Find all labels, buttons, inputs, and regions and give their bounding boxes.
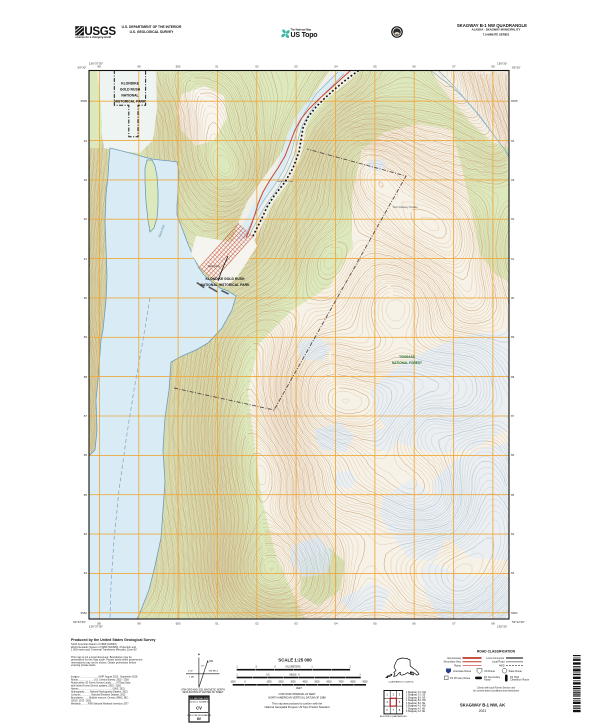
svg-text:ALASKA - SKAGWAY MUNICIPALITY: ALASKA - SKAGWAY MUNICIPALITY <box>472 28 521 32</box>
svg-text:Local Road: Local Road <box>492 661 505 664</box>
svg-text:08: 08 <box>491 622 495 626</box>
svg-text:US Route: US Route <box>484 669 496 673</box>
svg-text:TONGASS: TONGASS <box>399 355 415 359</box>
svg-text:NATIONAL: NATIONAL <box>121 94 138 98</box>
svg-text:US Topo: US Topo <box>291 32 318 39</box>
svg-text:05: 05 <box>373 65 377 69</box>
svg-text:Hydrography.........National H: Hydrography.........National Hydrography… <box>71 691 128 694</box>
svg-text:02: 02 <box>255 65 259 69</box>
svg-text:NORTH AMERICAN VERTICAL DATUM: NORTH AMERICAN VERTICAL DATUM OF 1988 <box>268 695 326 699</box>
svg-text:SKAGWAY B-1 NW, AK: SKAGWAY B-1 NW, AK <box>460 703 505 708</box>
svg-text:87: 87 <box>511 414 515 418</box>
svg-text:99: 99 <box>137 622 141 626</box>
svg-text:99: 99 <box>137 65 141 69</box>
svg-text:2021: 2021 <box>479 709 487 713</box>
svg-text:90: 90 <box>84 296 88 300</box>
svg-text:Wetlands...........FWS Nationa: Wetlands...........FWS National Wetlands… <box>71 703 129 706</box>
svg-text:136°30': 136°30' <box>497 625 508 629</box>
svg-text:1 000-meter grid: Universal Tr: 1 000-meter grid: Universal Transverse M… <box>71 648 137 652</box>
svg-text:Interstate Route: Interstate Route <box>453 669 472 673</box>
svg-text:Roads.........................: Roads.........................U.S. Censu… <box>71 679 130 682</box>
svg-text:GOLD RUSH: GOLD RUSH <box>120 88 141 92</box>
svg-text:Local Connector: Local Connector <box>486 657 504 660</box>
svg-text:86: 86 <box>84 453 88 457</box>
svg-text:85: 85 <box>84 493 88 497</box>
svg-text:Names.........................: Names...................................… <box>71 689 126 691</box>
svg-text:136°37'30": 136°37'30" <box>89 62 104 66</box>
svg-text:Clearance Route: Clearance Route <box>510 678 530 682</box>
svg-text:USGS, 1972 - 2021: USGS, 1972 - 2021 <box>71 701 92 703</box>
svg-text:1000: 1000 <box>230 682 236 684</box>
svg-text:QUADRANGLE LOCATION: QUADRANGLE LOCATION <box>389 680 414 683</box>
svg-text:KLONDIKE GOLD RUSH: KLONDIKE GOLD RUSH <box>206 277 246 281</box>
svg-text:6000: 6000 <box>326 682 332 684</box>
svg-text:01: 01 <box>215 65 219 69</box>
svg-text:U.S. GEOLOGICAL SURVEY: U.S. GEOLOGICAL SURVEY <box>130 30 175 34</box>
svg-text:Gold Rush Cem: Gold Rush Cem <box>277 181 293 183</box>
svg-text:0°02': 0°02' <box>188 671 194 673</box>
svg-text:93: 93 <box>511 178 515 182</box>
svg-text:92: 92 <box>84 217 88 221</box>
svg-text:136°30': 136°30' <box>497 62 508 66</box>
svg-text:04: 04 <box>334 622 338 626</box>
svg-text:136°37'30": 136°37'30" <box>89 625 104 629</box>
svg-text:89: 89 <box>84 335 88 339</box>
svg-text:science for a changing world: science for a changing world <box>75 35 111 39</box>
svg-text:59°30': 59°30' <box>78 66 87 70</box>
svg-text:7 Skagway A-1 NE: 7 Skagway A-1 NE <box>406 707 426 710</box>
svg-text:02: 02 <box>255 622 259 626</box>
svg-text:8V: 8V <box>197 717 202 721</box>
svg-text:2000: 2000 <box>278 682 284 684</box>
svg-text:04: 04 <box>334 65 338 69</box>
svg-text:05: 05 <box>373 622 377 626</box>
svg-text:8 Skagway A-1 SE: 8 Skagway A-1 SE <box>406 710 425 713</box>
svg-text:Ramp: Ramp <box>454 664 461 667</box>
svg-text:6582: 6582 <box>81 611 88 615</box>
svg-text:5 Skagway B-1 SE: 5 Skagway B-1 SE <box>406 703 426 705</box>
svg-text:6595: 6595 <box>81 99 88 103</box>
svg-text:01: 01 <box>215 622 219 626</box>
svg-text:4 Skagway B-1 SW: 4 Skagway B-1 SW <box>406 700 427 702</box>
svg-text:87: 87 <box>84 414 88 418</box>
svg-text:Produced by the United States: Produced by the United States Geological… <box>71 638 155 642</box>
svg-text:83: 83 <box>511 571 515 575</box>
svg-text:06: 06 <box>412 622 416 626</box>
svg-text:National Geospatial Program US: National Geospatial Program US Topo Prod… <box>265 705 330 709</box>
svg-text:6 Skagway A-1 NW: 6 Skagway A-1 NW <box>406 705 427 708</box>
svg-text:UTM GRID AND 2021 MAGNETIC NOR: UTM GRID AND 2021 MAGNETIC NORTH <box>181 688 225 691</box>
svg-text:94: 94 <box>84 139 88 143</box>
svg-text:3000: 3000 <box>290 682 296 684</box>
svg-text:with limited Forest Service up: with limited Forest Service updates, 201… <box>71 685 122 688</box>
svg-text:91: 91 <box>84 257 88 261</box>
svg-text:ADJOINING QUADRANGLES: ADJOINING QUADRANGLES <box>380 715 407 718</box>
svg-text:2 Skagway C-1 SE: 2 Skagway C-1 SE <box>406 695 426 697</box>
svg-text:Route: Route <box>484 678 491 682</box>
svg-text:HISTORICAL PARK: HISTORICAL PARK <box>115 100 146 104</box>
svg-text:5000: 5000 <box>314 682 320 684</box>
svg-text:84: 84 <box>84 532 88 536</box>
svg-text:500: 500 <box>176 622 181 626</box>
svg-text:84: 84 <box>511 532 515 536</box>
svg-text:83: 83 <box>84 571 88 575</box>
svg-text:92: 92 <box>511 217 515 221</box>
svg-text:MILES: MILES <box>290 674 297 676</box>
svg-text:FEET: FEET <box>296 688 302 690</box>
svg-text:86: 86 <box>511 453 515 457</box>
svg-text:DECLINATION AT CENTER OF SHEET: DECLINATION AT CENTER OF SHEET <box>183 691 224 694</box>
svg-text:ROAD CLASSIFICATION: ROAD CLASSIFICATION <box>477 650 516 654</box>
svg-text:Contours.................Natio: Contours.................National Elevat… <box>71 694 126 697</box>
svg-text:94: 94 <box>511 139 515 143</box>
svg-text:U.S. DEPARTMENT OF THE INTERIO: U.S. DEPARTMENT OF THE INTERIOR <box>122 25 182 29</box>
svg-text:FS Primary Route: FS Primary Route <box>450 676 471 680</box>
svg-text:88: 88 <box>511 375 515 379</box>
svg-text:91: 91 <box>511 257 515 261</box>
svg-text:KILOMETERS: KILOMETERS <box>286 667 301 669</box>
svg-text:89: 89 <box>511 335 515 339</box>
svg-text:88: 88 <box>84 375 88 379</box>
svg-text:KLONDIKE: KLONDIKE <box>121 82 139 86</box>
svg-text:4000: 4000 <box>302 682 308 684</box>
svg-text:Boundaries..........Multiple s: Boundaries..........Multiple sources; Ce… <box>71 697 129 700</box>
svg-text:59°22'30": 59°22'30" <box>512 620 525 624</box>
svg-text:07: 07 <box>452 65 456 69</box>
svg-text:03: 03 <box>294 622 298 626</box>
svg-text:59°30': 59°30' <box>512 66 521 70</box>
svg-text:6582: 6582 <box>511 611 518 615</box>
svg-text:Secondary Hwy: Secondary Hwy <box>443 661 461 664</box>
svg-text:U.S. NATIONAL GRID: U.S. NATIONAL GRID <box>190 697 209 700</box>
svg-text:85: 85 <box>511 493 515 497</box>
svg-text:8000: 8000 <box>350 682 356 684</box>
svg-text:338 MILS: 338 MILS <box>209 671 219 673</box>
svg-text:93: 93 <box>84 178 88 182</box>
svg-text:Skagway: Skagway <box>208 264 221 268</box>
svg-text:08: 08 <box>491 65 495 69</box>
svg-text:7000: 7000 <box>338 682 344 684</box>
svg-text:1 MIL: 1 MIL <box>189 677 195 679</box>
svg-text:for current travel conditions: for current travel conditions and restri… <box>473 689 520 692</box>
svg-text:1000: 1000 <box>266 682 272 684</box>
svg-text:NATIONAL HISTORICAL PARK: NATIONAL HISTORICAL PARK <box>200 283 250 287</box>
svg-text:SCALE 1:25 000: SCALE 1:25 000 <box>278 658 312 663</box>
svg-text:Twin Dewey Peaks: Twin Dewey Peaks <box>392 205 418 209</box>
svg-text:90: 90 <box>511 296 515 300</box>
svg-text:Roads within US Forest Service: Roads within US Forest Service Lands....… <box>71 682 131 685</box>
svg-text:07: 07 <box>452 622 456 626</box>
svg-text:06: 06 <box>412 65 416 69</box>
svg-text:6595: 6595 <box>511 99 518 103</box>
svg-text:The National Map: The National Map <box>291 28 312 31</box>
svg-text:100,000-m SQUARE ID: 100,000-m SQUARE ID <box>189 701 210 704</box>
svg-text:Imagery.......................: Imagery..............................NAI… <box>71 676 138 679</box>
svg-text:State Route: State Route <box>509 669 523 673</box>
svg-text:entering private lands.: entering private lands. <box>71 663 96 667</box>
svg-text:Expressway: Expressway <box>448 657 462 660</box>
svg-text:MN: MN <box>209 660 213 663</box>
svg-text:59°22'30": 59°22'30" <box>73 620 86 624</box>
svg-text:3 Skagway B-1 NE: 3 Skagway B-1 NE <box>406 697 426 699</box>
svg-text:NATIONAL FOREST: NATIONAL FOREST <box>392 361 422 365</box>
svg-text:19°: 19° <box>201 666 204 668</box>
svg-text:CV: CV <box>196 706 202 711</box>
svg-text:500: 500 <box>176 65 181 69</box>
svg-text:7.5-MINUTE SERIES: 7.5-MINUTE SERIES <box>483 32 510 36</box>
svg-text:03: 03 <box>294 65 298 69</box>
svg-text:4WD: 4WD <box>499 664 505 667</box>
svg-text:1 Skagway C-1 SW: 1 Skagway C-1 SW <box>406 692 427 694</box>
svg-text:9000: 9000 <box>362 682 368 684</box>
